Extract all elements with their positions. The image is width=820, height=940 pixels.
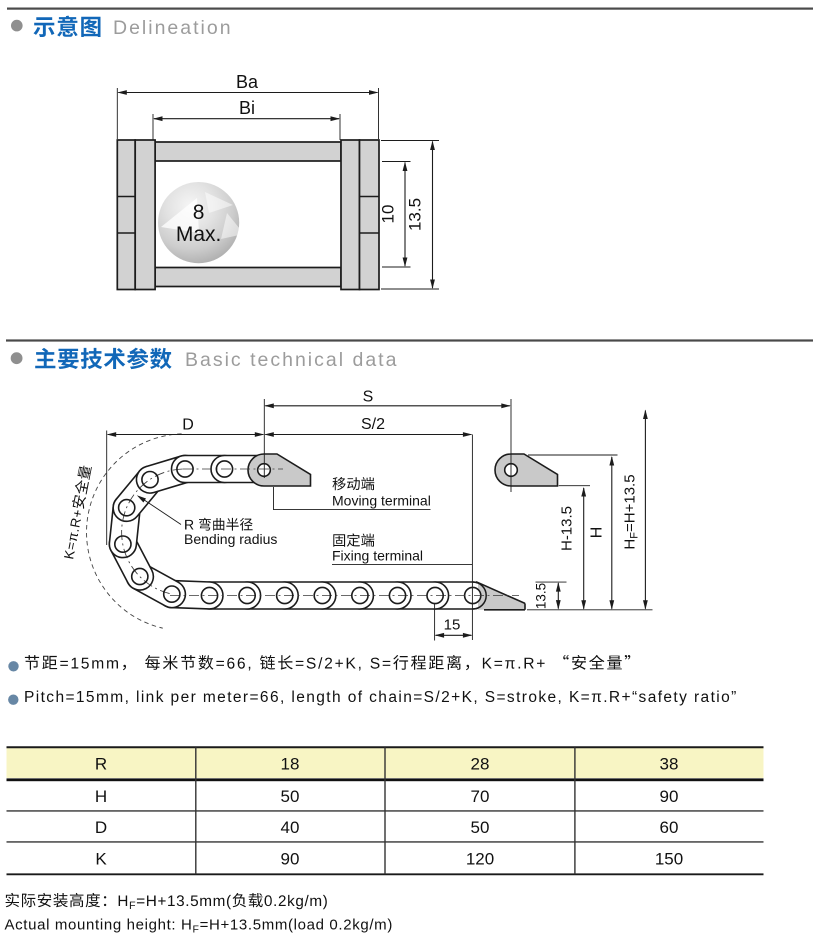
svg-text:13.5: 13.5 — [534, 583, 549, 609]
svg-text:Actual mounting height: HF=H+1: Actual mounting height: HF=H+13.5mm(load… — [5, 917, 393, 936]
svg-text:K: K — [95, 849, 107, 868]
svg-text:H: H — [95, 787, 107, 806]
svg-text:Max.: Max. — [176, 223, 222, 246]
svg-text:8: 8 — [193, 201, 205, 224]
svg-text:38: 38 — [660, 754, 679, 773]
svg-text:70: 70 — [471, 787, 490, 806]
svg-text:40: 40 — [281, 818, 300, 837]
svg-text:HF=H+13.5: HF=H+13.5 — [622, 474, 641, 549]
svg-text:50: 50 — [471, 818, 490, 837]
svg-text:H-13.5: H-13.5 — [559, 506, 576, 551]
svg-text:120: 120 — [466, 849, 494, 868]
svg-text:R: R — [95, 754, 107, 773]
svg-text:Ba: Ba — [236, 72, 259, 92]
svg-text:S/2: S/2 — [361, 416, 385, 433]
svg-text:13.5: 13.5 — [406, 198, 425, 231]
svg-text:S: S — [363, 389, 374, 406]
svg-text:60: 60 — [660, 818, 679, 837]
svg-text:Moving terminal: Moving terminal — [332, 493, 431, 509]
svg-text:90: 90 — [660, 787, 679, 806]
svg-text:90: 90 — [281, 849, 300, 868]
svg-text:H: H — [589, 527, 606, 539]
svg-text:D: D — [95, 818, 107, 837]
svg-text:15: 15 — [444, 617, 461, 634]
svg-text:150: 150 — [655, 849, 683, 868]
svg-text:D: D — [182, 417, 194, 434]
svg-text:Bi: Bi — [239, 98, 255, 118]
svg-text:28: 28 — [471, 754, 490, 773]
svg-text:50: 50 — [281, 787, 300, 806]
svg-text:Bending radius: Bending radius — [184, 531, 277, 547]
svg-text:Basic technical data: Basic technical data — [185, 349, 398, 371]
svg-text:10: 10 — [379, 205, 398, 224]
svg-text:Delineation: Delineation — [113, 17, 233, 39]
svg-text:Pitch=15mm, link per meter=66,: Pitch=15mm, link per meter=66, length of… — [24, 689, 738, 706]
svg-text:18: 18 — [281, 754, 300, 773]
svg-text:Fixing terminal: Fixing terminal — [332, 548, 423, 564]
